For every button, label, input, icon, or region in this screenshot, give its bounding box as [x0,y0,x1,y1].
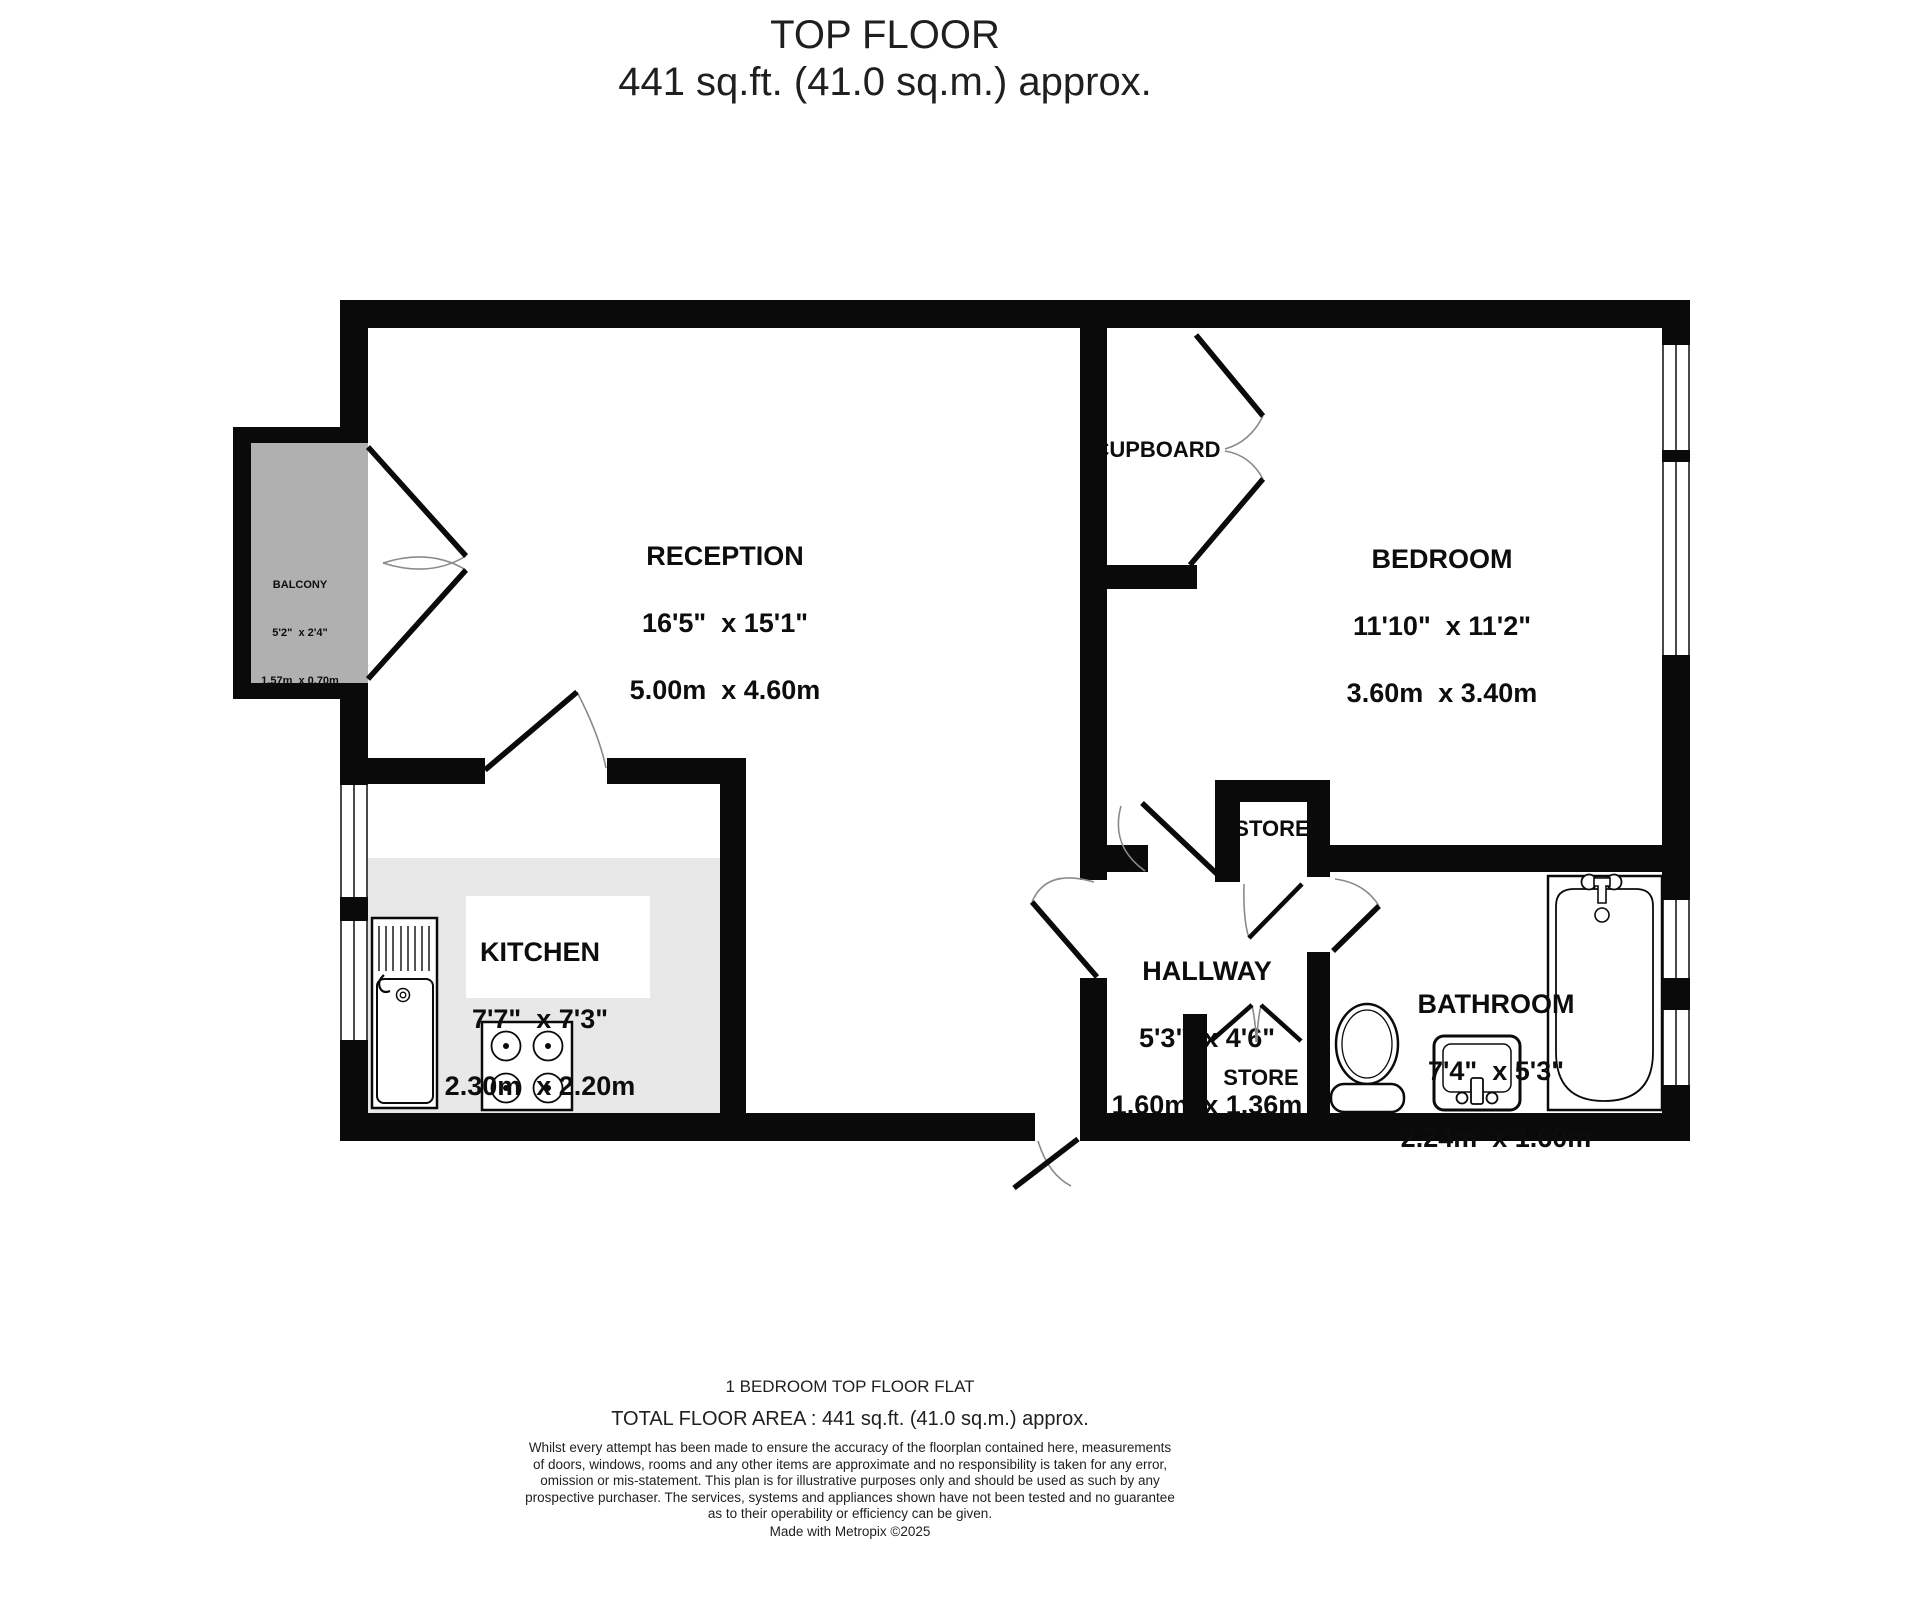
kitchen-wall-right [720,758,746,1113]
kitchen-door-icon [485,692,606,770]
store-upper-label: STORE [1234,817,1309,841]
kitchen-window-upper [340,785,368,897]
balcony-dims-imperial: 5'2" x 2'4" [261,627,339,639]
wall-right-bottom [1662,1085,1690,1141]
kitchen-wall-top-left [340,758,485,784]
bathroom-wall-top [1330,845,1662,872]
hall-bath-divider-lower [1307,952,1330,1113]
wall-left-upper [340,300,368,443]
bedroom-name: BEDROOM [1347,544,1538,575]
hallway-dims-imperial: 5'3" x 4'6" [1112,1023,1303,1054]
store-lower-wall-left [1183,1014,1207,1113]
bathroom-label: BATHROOM 7'4" x 5'3" 2.24m x 1.60m [1401,953,1592,1190]
reception-hallway-door-icon [1032,878,1097,977]
balcony-wall-top [233,427,368,443]
credit: Made with Metropix ©2025 [250,1524,1450,1539]
reception-dims-metric: 5.00m x 4.60m [630,675,821,706]
bedroom-dims-metric: 3.60m x 3.40m [1347,678,1538,709]
kitchen-name: KITCHEN [445,937,636,968]
bathroom-window-upper [1662,900,1690,978]
bedroom-window-upper [1662,345,1690,450]
wall-right-pier1 [1662,450,1690,462]
hallway-name: HALLWAY [1112,956,1303,987]
kitchen-dims-metric: 2.30m x 2.20m [445,1071,636,1102]
cupboard-wall-bottom [1107,565,1197,589]
store-lower-label: STORE [1223,1066,1298,1090]
page-title: TOP FLOOR 441 sq.ft. (41.0 sq.m.) approx… [335,12,1435,106]
cupboard-label: CUPBOARD [1093,438,1220,462]
bathroom-name: BATHROOM [1401,989,1592,1020]
wall-right-top [1662,300,1690,345]
hall-bath-divider-upper [1307,780,1330,877]
reception-dims-imperial: 16'5" x 15'1" [630,608,821,639]
title-floor: TOP FLOOR [335,12,1435,59]
wall-right-mid [1662,655,1690,900]
balcony-name: BALCONY [261,579,339,591]
kitchen-dims-imperial: 7'7" x 7'3" [445,1004,636,1035]
wall-left-lower [340,1040,368,1141]
floorplan-page: TOP FLOOR 441 sq.ft. (41.0 sq.m.) approx… [0,0,1920,1597]
wall-right-pier2 [1662,978,1690,1010]
bedroom-dims-imperial: 11'10" x 11'2" [1347,611,1538,642]
balcony-label: BALCONY 5'2" x 2'4" 1.57m x 0.70m [261,543,339,723]
bathroom-door-icon [1333,879,1379,951]
toilet-icon [1331,1004,1404,1112]
bedroom-window-lower [1662,462,1690,655]
reception-name: RECEPTION [630,541,821,572]
wall-left-pier [340,897,368,921]
kitchen-label: KITCHEN 7'7" x 7'3" 2.30m x 2.20m [445,901,636,1138]
entry-door-icon [1014,1139,1078,1188]
doors-and-fixtures-overlay [0,0,1920,1597]
bedroom-label: BEDROOM 11'10" x 11'2" 3.60m x 3.40m [1347,508,1538,745]
kitchen-window-lower [340,921,368,1040]
wall-bottom-right [1080,1113,1690,1141]
bathroom-dims-imperial: 7'4" x 5'3" [1401,1056,1592,1087]
wall-top [340,300,1690,328]
store-upper-wall-left [1215,780,1240,882]
total-floor-area: TOTAL FLOOR AREA : 441 sq.ft. (41.0 sq.m… [250,1408,1450,1431]
wall-reception-divider-upper [1080,328,1107,880]
disclaimer: Whilst every attempt has been made to en… [250,1440,1450,1523]
property-type: 1 BEDROOM TOP FLOOR FLAT [250,1377,1450,1397]
balcony-wall-left [233,427,251,699]
bathroom-window-lower [1662,1010,1690,1085]
wall-reception-divider-lower [1080,978,1107,1113]
bathroom-dims-metric: 2.24m x 1.60m [1401,1123,1592,1154]
balcony-doors-icon [368,447,466,679]
reception-label: RECEPTION 16'5" x 15'1" 5.00m x 4.60m [630,505,821,742]
bedroom-wall-bottom-stub [1107,845,1148,872]
title-area: 441 sq.ft. (41.0 sq.m.) approx. [335,59,1435,106]
balcony-dims-metric: 1.57m x 0.70m [261,675,339,687]
